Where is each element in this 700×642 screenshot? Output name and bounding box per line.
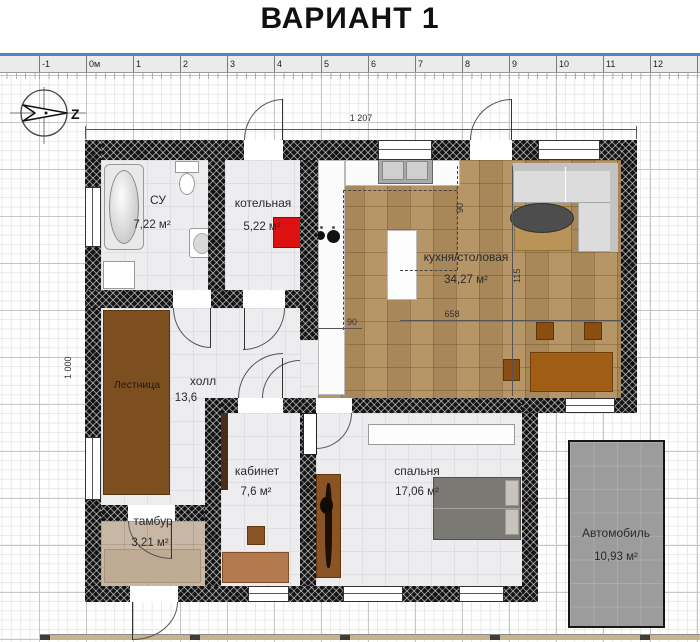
dining-table (530, 352, 613, 392)
room-hall-area: 13,6 (175, 392, 197, 404)
window (343, 586, 403, 602)
washing-machine (103, 261, 135, 289)
hall-kitchen-passage-floor (300, 340, 318, 398)
kitchen-sink-bowl (382, 161, 404, 180)
zone-line (343, 190, 457, 191)
ruler-number: 8 (465, 59, 470, 69)
dimension-line-top (85, 129, 637, 130)
ruler-number: 0м (89, 59, 100, 69)
dimension-building-height: 1 000 (63, 335, 73, 379)
office-desk (222, 552, 289, 583)
wall-bedroom-right (522, 413, 538, 602)
stove-burner (327, 230, 340, 243)
dimension-tick (636, 126, 637, 139)
room-office-label: кабинет (235, 464, 279, 478)
door-leaf (244, 308, 245, 350)
stove-knob (332, 226, 335, 229)
ruler-number: -1 (42, 59, 50, 69)
staircase-label: Лестница (114, 379, 160, 391)
room-kitchen-label: кухня/столовая (424, 250, 509, 264)
coffee-table (510, 203, 574, 233)
kitchen-counter-left (318, 160, 345, 395)
window (459, 586, 504, 602)
room-su-area: 7,22 м² (133, 219, 170, 231)
room-kitchen-area: 34,27 м² (444, 274, 488, 286)
door-leaf (210, 308, 211, 348)
door-leaf (303, 413, 317, 455)
door-leaf (511, 99, 512, 140)
room-hall-label: холл (190, 374, 216, 388)
dimension-line (400, 320, 621, 321)
dimension-building-width: 1 207 (350, 113, 373, 123)
wall-right (621, 140, 637, 413)
compass-label: Z (71, 106, 80, 122)
window (378, 140, 432, 160)
wall-office-west (205, 398, 221, 586)
dining-chair (536, 322, 554, 340)
ruler-number: 9 (512, 59, 517, 69)
car-space-label: Автомобиль (582, 526, 650, 540)
floor-plan-page: ВАРИАНТ 1 -10м12345678910111213 Z 1 207 … (0, 0, 700, 642)
sofa-backrest (610, 171, 618, 252)
page-title: ВАРИАНТ 1 (0, 2, 700, 36)
ruler-minor-ticks (0, 73, 700, 79)
staircase (103, 310, 170, 495)
window (538, 140, 600, 160)
room-su-label: СУ (150, 193, 166, 207)
door-leaf (132, 602, 133, 640)
kitchen-sink-bowl (406, 161, 428, 180)
bathtub-basin (109, 170, 139, 244)
door-opening (244, 140, 283, 160)
door-opening (173, 290, 211, 308)
compass-north-icon: Z (10, 86, 90, 153)
ruler-number: 12 (653, 59, 663, 69)
pillow (505, 509, 519, 535)
door-leaf (282, 358, 283, 398)
dimension-kitchen-zone-depth: 90 (455, 193, 465, 213)
toilet-tank (175, 161, 199, 173)
bedroom-closet (368, 424, 515, 445)
ruler-number: 7 (418, 59, 423, 69)
ruler-number: 5 (324, 59, 329, 69)
zone-line (343, 190, 344, 330)
car-space-area: 10,93 м² (594, 551, 638, 563)
office-chair (247, 526, 265, 545)
room-office-area: 7,6 м² (241, 486, 272, 498)
door-opening (130, 586, 178, 602)
room-tambour-area: 3,21 м² (131, 537, 168, 549)
ruler: -10м12345678910111213 (0, 53, 700, 73)
door-opening (238, 398, 283, 413)
wall-su-boiler (208, 160, 225, 290)
zone-line (400, 270, 457, 271)
ruler-number: 3 (230, 59, 235, 69)
dimension-kitchen-pass-width: 90 (347, 317, 357, 327)
room-boiler-label: котельная (235, 196, 291, 210)
ruler-number: 6 (371, 59, 376, 69)
ruler-number: 11 (606, 59, 615, 69)
wall-hall-kitchen-stub (300, 308, 318, 340)
stove-knob (320, 226, 323, 229)
window (85, 437, 101, 500)
kitchen-island (387, 230, 417, 300)
door-opening (243, 290, 285, 308)
ruler-number: 10 (559, 59, 569, 69)
room-bedroom-label: спальня (394, 464, 440, 478)
room-tambour-label: тамбур (133, 514, 172, 528)
ruler-number: 1 (136, 59, 141, 69)
bedroom-wardrobe-decor (325, 483, 332, 568)
dining-chair (584, 322, 602, 340)
door-opening (316, 398, 352, 413)
window (85, 187, 101, 247)
room-boiler-area: 5,22 м² (243, 221, 280, 233)
dimension-dining-depth: 115 (512, 257, 522, 283)
door-leaf (282, 99, 283, 140)
ruler-number: 2 (183, 59, 188, 69)
window (248, 586, 289, 602)
door-opening (470, 140, 512, 160)
dimension-tick (85, 126, 86, 139)
bedroom-wardrobe-decor (320, 497, 333, 514)
dimension-kitchen-zone-width: 658 (444, 309, 459, 319)
ruler-number: 4 (277, 59, 282, 69)
sofa-cushion-seam (565, 167, 566, 202)
room-bedroom-area: 17,06 м² (395, 486, 439, 498)
wall-boiler-kitchen (300, 160, 318, 308)
toilet-bowl (179, 173, 195, 195)
pillow (505, 480, 519, 506)
window (565, 398, 615, 413)
